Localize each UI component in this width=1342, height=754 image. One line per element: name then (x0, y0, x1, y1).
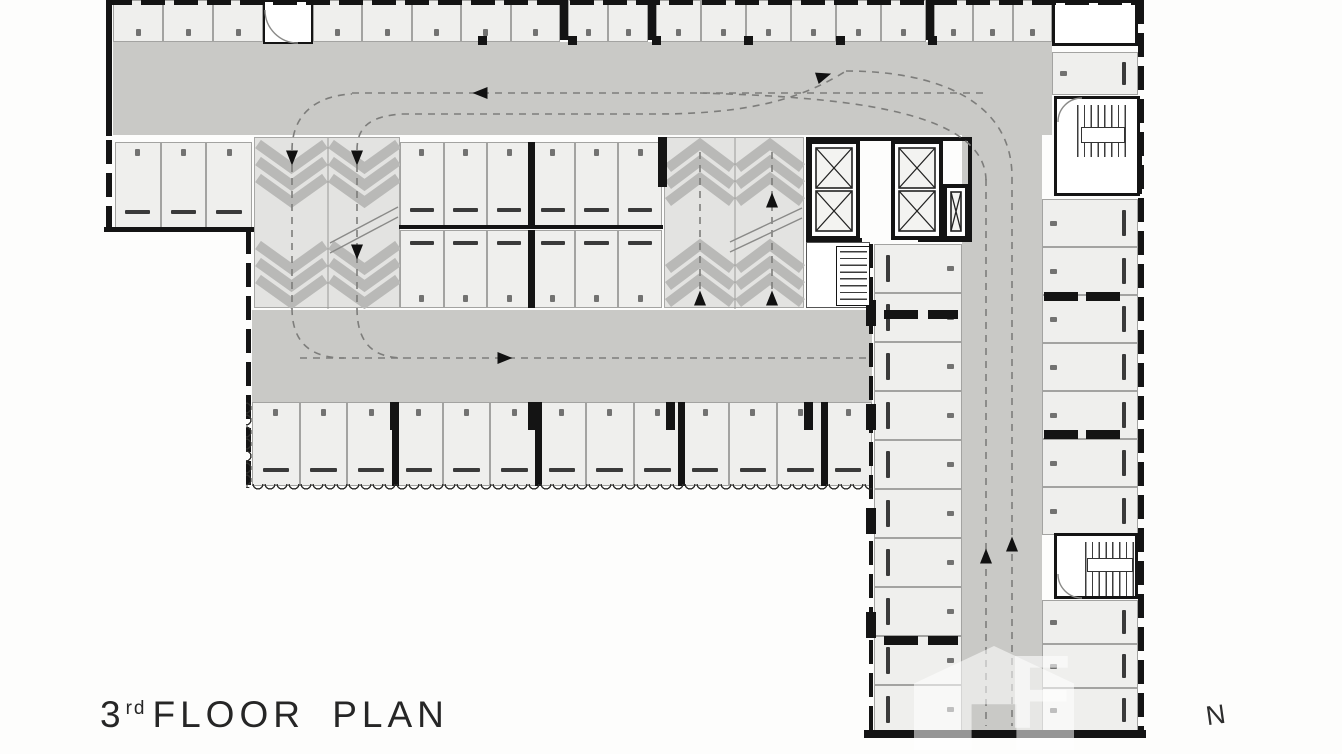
wheel-stop (216, 210, 241, 214)
wheel-stop (1122, 402, 1126, 429)
watermark-letter: F (1008, 634, 1072, 753)
parking-stall (575, 230, 619, 308)
parking-stall (1042, 391, 1138, 439)
wheel-stop (886, 402, 890, 429)
parking-stall (443, 402, 491, 486)
parking-stall (874, 391, 962, 440)
wall-block (528, 402, 537, 430)
wheel-stop (886, 500, 890, 527)
north-indicator: N (1204, 699, 1228, 732)
parking-stall (729, 402, 777, 486)
wheel-stop (692, 468, 718, 472)
parking-stall (252, 402, 300, 486)
wheel-stop (1122, 498, 1126, 525)
stall-number-mark (550, 149, 555, 156)
stall-number-mark (559, 409, 564, 416)
parking-stall (618, 142, 662, 226)
stall-number-mark (236, 29, 241, 36)
parking-stall (746, 0, 791, 42)
stall-number-mark (416, 409, 421, 416)
wall-segment (246, 230, 251, 488)
stall-number-mark (1050, 221, 1057, 226)
parking-stall (487, 142, 531, 226)
stall-number-mark (181, 149, 186, 156)
stall-number-mark (1050, 317, 1057, 322)
wall-segment (399, 225, 663, 229)
wall-block (866, 508, 876, 534)
parking-stall (362, 0, 411, 42)
wheel-stop (1122, 258, 1126, 285)
stall-row (656, 0, 926, 42)
stall-number-mark (947, 462, 954, 467)
wheel-stop (628, 208, 652, 212)
wall-block (1086, 430, 1120, 439)
stall-number-mark (947, 609, 954, 614)
stall-number-mark (186, 29, 191, 36)
parking-stall (400, 142, 444, 226)
wheel-stop (886, 549, 890, 576)
wall-segment (104, 227, 254, 232)
drive-lane (252, 310, 872, 402)
elevator-shaft (943, 184, 969, 240)
parking-stall (634, 402, 682, 486)
parking-stall (490, 402, 538, 486)
stall-number-mark (507, 149, 512, 156)
wall-block (866, 612, 876, 638)
wall-block (804, 402, 813, 430)
wall-segment (560, 0, 568, 40)
wheel-stop (549, 468, 575, 472)
traffic-arrow (473, 87, 488, 99)
parking-stall (461, 0, 510, 42)
wheel-stop (410, 208, 434, 212)
stall-number-mark (947, 315, 954, 320)
wheel-stop (263, 468, 289, 472)
wheel-stop (453, 468, 479, 472)
parking-stall (681, 402, 729, 486)
parking-stall (412, 0, 461, 42)
parking-stall (568, 0, 608, 42)
stall-number-mark (947, 511, 954, 516)
wheel-stop (497, 208, 521, 212)
parking-stall (575, 142, 619, 226)
wall-block (744, 36, 753, 45)
parking-stall (531, 230, 575, 308)
wall-block (528, 142, 535, 226)
stall-number-mark (947, 560, 954, 565)
wheel-stop (1122, 62, 1126, 86)
stall-number-mark (1050, 620, 1057, 625)
wall-block (666, 402, 675, 430)
stall-number-mark (638, 149, 643, 156)
parking-stall (874, 293, 962, 342)
parking-stall (115, 142, 161, 228)
stall-number-mark (811, 29, 816, 36)
wall-segment (108, 0, 1142, 5)
stall-row (1052, 52, 1138, 95)
wall-block (652, 36, 661, 45)
wheel-stop (584, 208, 608, 212)
elevator-icon (816, 148, 852, 188)
wheel-stop (501, 468, 527, 472)
wall-block (836, 36, 845, 45)
wheel-stop (1122, 210, 1126, 237)
parking-stall (213, 0, 263, 42)
wall-block (884, 310, 918, 319)
elevator-icon (951, 192, 961, 231)
elevator-icon (1104, 156, 1134, 185)
parking-stall (701, 0, 746, 42)
wall-segment (648, 0, 656, 40)
wall-block (528, 230, 535, 308)
stall-number-mark (798, 409, 803, 416)
wall-block (390, 402, 399, 430)
stall-row (1042, 199, 1138, 535)
wheel-stop (584, 241, 608, 245)
stall-number-mark (947, 413, 954, 418)
stair-treads-icon (1085, 542, 1137, 596)
stair-landing (1087, 558, 1133, 572)
room (1052, 0, 1138, 46)
stall-number-mark (1060, 71, 1067, 76)
parking-stall (538, 402, 586, 486)
stall-number-mark (594, 149, 599, 156)
stall-row (115, 142, 252, 228)
parking-stall (444, 230, 488, 308)
wheel-stop (453, 241, 477, 245)
wheel-stop (886, 598, 890, 625)
traffic-arrow (766, 291, 778, 306)
plan-title-text: FLOOR PLAN (152, 694, 448, 735)
stair-core (1054, 96, 1140, 196)
parking-stall (1052, 52, 1138, 95)
wheel-stop (787, 468, 813, 472)
wheel-stop (886, 353, 890, 380)
stall-number-mark (464, 409, 469, 416)
parking-stall (113, 0, 163, 42)
wheel-stop (1122, 306, 1126, 333)
stall-row (400, 230, 662, 308)
wall-segment (926, 0, 934, 40)
wall-block (1044, 430, 1078, 439)
wheel-stop (1122, 450, 1126, 477)
traffic-arrow (980, 549, 992, 564)
stall-number-mark (766, 29, 771, 36)
stair-core (836, 246, 870, 306)
parking-stall (874, 489, 962, 538)
wall-block (568, 36, 577, 45)
parking-stall (313, 0, 362, 42)
stall-number-mark (550, 295, 555, 302)
wall-segment (968, 137, 972, 241)
stair-treads-icon (840, 251, 867, 303)
ramp-area (664, 137, 804, 308)
stall-number-mark (846, 409, 851, 416)
traffic-arrow (815, 68, 833, 84)
parking-stall (777, 402, 825, 486)
stall-number-mark (419, 295, 424, 302)
stall-number-mark (1050, 413, 1057, 418)
parking-stall (874, 440, 962, 489)
wheel-stop (171, 210, 196, 214)
stall-number-mark (1030, 29, 1035, 36)
traffic-arrow (351, 151, 363, 166)
wheel-stop (358, 468, 384, 472)
elevator-icon (816, 191, 852, 231)
wheel-stop (644, 468, 670, 472)
traffic-arrow (1006, 537, 1018, 552)
traffic-arrow (694, 291, 706, 306)
parking-stall (300, 402, 348, 486)
wheel-stop (1122, 354, 1126, 381)
stall-number-mark (947, 266, 954, 271)
stall-number-mark (1050, 365, 1057, 370)
ramp-chevrons (255, 138, 401, 309)
scallop-edge (252, 484, 872, 491)
stall-number-mark (483, 29, 488, 36)
stall-number-mark (655, 409, 660, 416)
parking-stall (874, 538, 962, 587)
wheel-stop (310, 468, 336, 472)
wheel-stop (835, 468, 861, 472)
stall-number-mark (594, 295, 599, 302)
stall-number-mark (1050, 269, 1057, 274)
wheel-stop (497, 241, 521, 245)
parking-stall (400, 230, 444, 308)
stall-number-mark (676, 29, 681, 36)
parking-stall (161, 142, 207, 228)
plan-title-ordinal: rd (126, 698, 147, 719)
stall-number-mark (369, 409, 374, 416)
wall-block (1044, 292, 1078, 301)
elevator-icon (899, 191, 935, 231)
parking-stall (656, 0, 701, 42)
watermark-logo: F (878, 628, 1178, 754)
stall-row (252, 402, 872, 486)
stall-number-mark (507, 295, 512, 302)
parking-stall (618, 230, 662, 308)
wheel-stop (740, 468, 766, 472)
parking-stall (206, 142, 252, 228)
parking-stall (1042, 199, 1138, 247)
stall-number-mark (626, 29, 631, 36)
wall-block (1086, 292, 1120, 301)
elevator-shaft (1096, 148, 1142, 194)
stair-landing (1081, 127, 1125, 143)
stall-number-mark (586, 29, 591, 36)
wall-block (866, 300, 876, 326)
parking-stall (347, 402, 395, 486)
stall-number-mark (512, 409, 517, 416)
parking-stall (1042, 439, 1138, 487)
wall-segment (658, 137, 667, 187)
stall-number-mark (901, 29, 906, 36)
parking-stall (824, 402, 872, 486)
parking-stall (791, 0, 836, 42)
stall-row (113, 0, 263, 42)
traffic-arrow (498, 352, 513, 364)
ramp-area (254, 137, 400, 308)
ramp-chevrons (665, 138, 805, 309)
wall-block (821, 402, 828, 486)
parking-stall (973, 0, 1012, 42)
stall-number-mark (638, 295, 643, 302)
stall-number-mark (136, 29, 141, 36)
stall-number-mark (434, 29, 439, 36)
parking-stall (487, 230, 531, 308)
stall-number-mark (419, 149, 424, 156)
floor-plan-page: F 3rdFLOOR PLAN N (0, 0, 1342, 754)
scallop-edge (246, 402, 253, 488)
drive-lane (113, 42, 1052, 135)
parking-stall (444, 142, 488, 226)
parking-stall (934, 0, 973, 42)
parking-stall (1042, 343, 1138, 391)
stall-row (568, 0, 648, 42)
parking-stall (511, 0, 560, 42)
stall-number-mark (335, 29, 340, 36)
wheel-stop (406, 468, 432, 472)
elevator-icon (899, 148, 935, 188)
parking-stall (874, 342, 962, 391)
stall-number-mark (273, 409, 278, 416)
wall-block (928, 36, 937, 45)
wheel-stop (628, 241, 652, 245)
wheel-stop (886, 304, 890, 331)
wheel-stop (596, 468, 622, 472)
parking-stall (1013, 0, 1052, 42)
wheel-stop (541, 241, 565, 245)
stall-number-mark (607, 409, 612, 416)
wheel-stop (541, 208, 565, 212)
wall-block (478, 36, 487, 45)
elevator-shaft (808, 140, 860, 240)
plan-title: 3rdFLOOR PLAN (100, 694, 449, 736)
wall-block (866, 404, 876, 430)
parking-stall (586, 402, 634, 486)
parking-stall (1042, 487, 1138, 535)
elevator-shaft (891, 140, 943, 240)
wall-segment (869, 244, 873, 732)
stall-number-mark (227, 149, 232, 156)
wall-block (678, 402, 685, 486)
stall-number-mark (533, 29, 538, 36)
room (263, 0, 313, 44)
wall-segment (806, 238, 862, 242)
wall-segment (1138, 0, 1144, 736)
wall-block (928, 310, 958, 319)
stair-treads-icon (1077, 105, 1127, 157)
parking-stall (881, 0, 926, 42)
stall-number-mark (1050, 461, 1057, 466)
wall-segment (918, 238, 972, 242)
stall-number-mark (135, 149, 140, 156)
wall-segment (106, 0, 112, 136)
stall-number-mark (990, 29, 995, 36)
wall-block (392, 402, 399, 486)
stall-number-mark (385, 29, 390, 36)
parking-stall (874, 244, 962, 293)
stall-row (934, 0, 1052, 42)
parking-stall (163, 0, 213, 42)
plan-title-number: 3 (100, 694, 126, 735)
stall-number-mark (750, 409, 755, 416)
parking-stall (1042, 295, 1138, 343)
stall-number-mark (1050, 509, 1057, 514)
stall-number-mark (463, 295, 468, 302)
stall-number-mark (947, 364, 954, 369)
wall-segment (806, 137, 972, 141)
wheel-stop (886, 451, 890, 478)
wheel-stop (453, 208, 477, 212)
stall-number-mark (703, 409, 708, 416)
wall-segment (106, 140, 112, 230)
stall-row (400, 142, 662, 226)
wheel-stop (125, 210, 150, 214)
parking-stall (1042, 247, 1138, 295)
parking-stall (395, 402, 443, 486)
wheel-stop (410, 241, 434, 245)
parking-stall (531, 142, 575, 226)
parking-stall (608, 0, 648, 42)
room (806, 242, 870, 308)
traffic-arrow (286, 151, 298, 166)
traffic-arrow (766, 193, 778, 208)
stair-core (1054, 533, 1138, 599)
stall-number-mark (321, 409, 326, 416)
stall-number-mark (463, 149, 468, 156)
parking-stall (836, 0, 881, 42)
stall-number-mark (721, 29, 726, 36)
stall-row (313, 0, 560, 42)
stall-number-mark (951, 29, 956, 36)
traffic-arrow (351, 245, 363, 260)
stall-number-mark (856, 29, 861, 36)
wheel-stop (886, 255, 890, 282)
wall-segment (806, 137, 810, 241)
wall-block (535, 402, 542, 486)
